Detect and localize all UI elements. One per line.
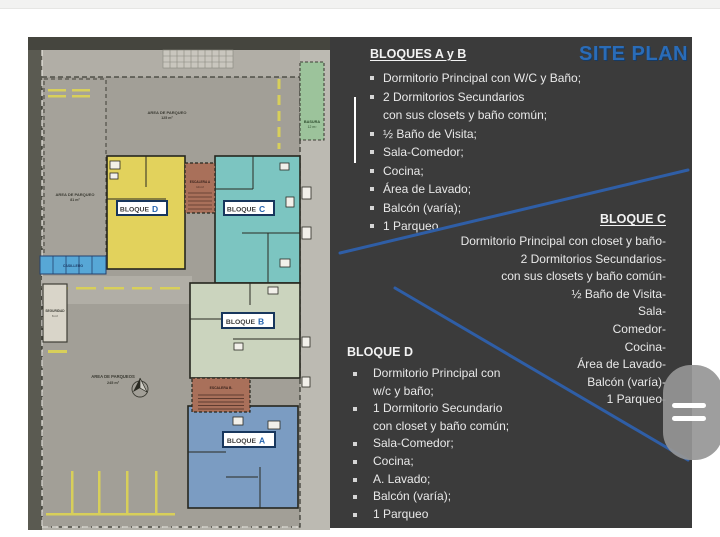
bloque-letter-a: A xyxy=(259,435,265,445)
bloque-letter-b: B xyxy=(258,316,264,326)
parqueo-bottom-label: AREA DE PARQUEOS xyxy=(91,374,135,379)
escalera-a: ESCALERA A 14 m² xyxy=(185,163,215,213)
list-item: Sala- xyxy=(461,303,666,321)
list-item: Cocina; xyxy=(370,162,660,181)
section-heading: BLOQUES A y B xyxy=(370,47,660,61)
hatched-pad xyxy=(163,50,233,68)
site-plan-svg: BASURA 12 m² ESCALERA A 14 m² ESCALERA B… xyxy=(28,37,330,530)
section-heading: BLOQUE C xyxy=(600,212,666,226)
section-heading: BLOQUE D xyxy=(347,345,612,359)
casilleros-strip: CASILLERO xyxy=(40,256,106,274)
bloque-d-plate: BLOQUE D xyxy=(117,201,167,215)
basura-label: BASURA xyxy=(304,120,321,124)
list-item: Área de Lavado; xyxy=(370,180,660,199)
list-item: Dormitorio Principal con closet y baño- xyxy=(461,233,666,251)
top-street-band xyxy=(28,37,330,50)
bloque-b-plate: BLOQUE B xyxy=(222,313,274,328)
list-item: Balcón (varía); xyxy=(347,488,612,506)
handle-bars-icon xyxy=(672,416,706,421)
casilleros-label: CASILLERO xyxy=(63,264,84,268)
list-item: con closet y baño común; xyxy=(347,418,612,436)
seguridad-room: SEGURIDAD 6 m² xyxy=(43,284,67,342)
list-item: Sala-Comedor; xyxy=(347,435,612,453)
bloque-c-plate: BLOQUE C xyxy=(224,201,274,215)
basura-area: 12 m² xyxy=(308,125,318,129)
handle-bars-icon xyxy=(672,403,706,408)
parqueo-left-label: AREA DE PARQUEO xyxy=(56,192,95,197)
list-item: 1 Parqueo xyxy=(347,506,612,524)
parqueo-bottom-area: 245 m² xyxy=(107,381,120,385)
seguridad-area: 6 m² xyxy=(52,314,58,318)
parking-left-area xyxy=(44,79,106,265)
site-plan-drawing: BASURA 12 m² ESCALERA A 14 m² ESCALERA B… xyxy=(28,37,330,530)
list-item: con sus closets y baño común; xyxy=(370,106,660,125)
info-panel: SITE PLAN BLOQUES A y B Dormitorio Princ… xyxy=(330,37,692,528)
escalera-a-label: ESCALERA A xyxy=(190,180,211,184)
left-street-strip xyxy=(28,50,42,530)
bloque-letter-d: D xyxy=(152,204,158,214)
list-item: Dormitorio Principal con xyxy=(347,365,612,383)
section-bloque-d: BLOQUE D Dormitorio Principal con w/c y … xyxy=(347,345,612,523)
escalera-b: ESCALERA B. xyxy=(192,378,250,412)
bloque-word: BLOQUE xyxy=(227,438,257,445)
list-item: Dormitorio Principal con W/C y Baño; xyxy=(370,69,660,88)
list-item: Sala-Comedor; xyxy=(370,143,660,162)
escalera-a-area: 14 m² xyxy=(196,185,204,189)
list-item: w/c y baño; xyxy=(347,383,612,401)
parqueo-top-label: AREA DE PARQUEO xyxy=(148,110,187,115)
list-item: ½ Baño de Visita- xyxy=(461,286,666,304)
basura-room: BASURA 12 m² xyxy=(300,62,324,140)
seguridad-label: SEGURIDAD xyxy=(45,309,65,313)
top-strip xyxy=(0,0,720,9)
section-bloques-ab: BLOQUES A y B Dormitorio Principal con W… xyxy=(370,47,660,236)
bloque-word: BLOQUE xyxy=(120,207,150,214)
bloque-word: BLOQUE xyxy=(227,207,257,214)
list-item: Cocina; xyxy=(347,453,612,471)
list-item: ½ Baño de Visita; xyxy=(370,125,660,144)
parqueo-left-area: 81 m² xyxy=(70,198,80,202)
list-item: A. Lavado; xyxy=(347,471,612,489)
bloque-letter-c: C xyxy=(259,204,265,214)
list-item: 2 Dormitorios Secundarios xyxy=(370,88,660,107)
bloque-b-building xyxy=(190,283,300,378)
side-menu-handle[interactable] xyxy=(663,365,720,460)
escalera-b-label: ESCALERA B. xyxy=(210,386,233,390)
list-item: 1 Dormitorio Secundario xyxy=(347,400,612,418)
side-tick-line xyxy=(354,97,356,163)
bloque-a-plate: BLOQUE A xyxy=(223,432,275,447)
list-item: con sus closets y baño común- xyxy=(461,268,666,286)
parqueo-top-area: 125 m² xyxy=(161,116,173,120)
list-item: Comedor- xyxy=(461,321,666,339)
bloque-word: BLOQUE xyxy=(226,319,256,326)
list-item: 2 Dormitorios Secundarios- xyxy=(461,251,666,269)
